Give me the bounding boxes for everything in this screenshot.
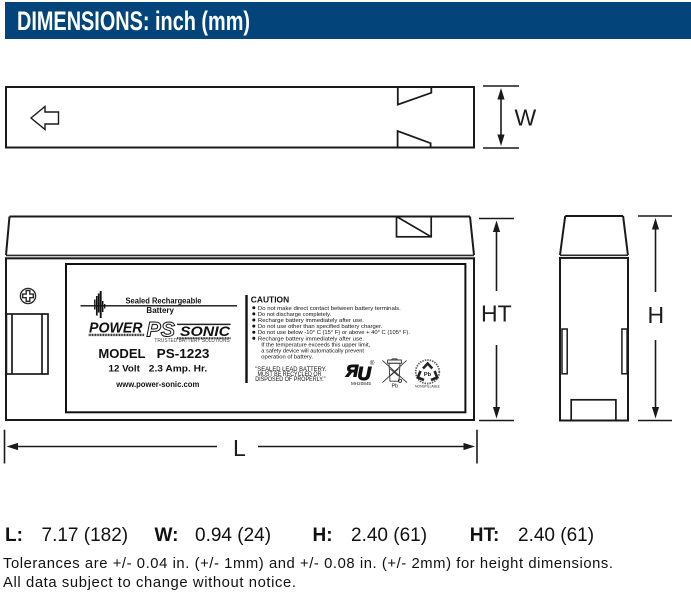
svg-text:L:: L:: [5, 525, 23, 546]
svg-text:Pb: Pb: [424, 372, 432, 378]
svg-text:Do not make direct contact bet: Do not make direct contact between batte…: [258, 306, 401, 312]
svg-text:www.power-sonic.com: www.power-sonic.com: [115, 380, 199, 389]
svg-text:a safety device will automatic: a safety device will automatically preve…: [261, 349, 364, 355]
svg-text:MODEL: MODEL: [98, 347, 145, 361]
svg-text:Sealed Rechargeable: Sealed Rechargeable: [126, 296, 203, 305]
svg-text:7.17 (182): 7.17 (182): [42, 525, 129, 546]
svg-text:TRUSTED BATTERY SOLUTIONS: TRUSTED BATTERY SOLUTIONS: [154, 338, 230, 344]
svg-text:operation of battery.: operation of battery.: [261, 355, 313, 361]
svg-text:2.40 (61): 2.40 (61): [351, 525, 427, 546]
svg-text:W: W: [515, 104, 537, 130]
svg-text:12 Volt: 12 Volt: [109, 364, 141, 375]
svg-text:®: ®: [370, 360, 375, 367]
svg-text:MH20845: MH20845: [351, 381, 371, 386]
svg-text:Do not use below -10° C (15° F: Do not use below -10° C (15° F) or above…: [258, 330, 410, 336]
svg-text:If the temperature exceeds thi: If the temperature exceeds this upper li…: [261, 342, 370, 348]
svg-text:NONSPILLABLE: NONSPILLABLE: [415, 383, 440, 388]
svg-text:Recharge battery immediately a: Recharge battery immediately after use.: [258, 336, 364, 342]
svg-text:Pb: Pb: [392, 384, 399, 390]
svg-text:Recharge battery immediately a: Recharge battery immediately after use.: [258, 318, 364, 324]
svg-text:Tolerances are +/- 0.04 in. (+: Tolerances are +/- 0.04 in. (+/- 1mm) an…: [3, 556, 613, 572]
svg-text:2.3 Amp. Hr.: 2.3 Amp. Hr.: [149, 364, 207, 375]
svg-text:HT: HT: [481, 301, 512, 327]
svg-text:DISPOSED OF PROPERLY.": DISPOSED OF PROPERLY.": [255, 376, 325, 383]
svg-text:Do not discharge completely.: Do not discharge completely.: [258, 312, 332, 318]
svg-text:0.94 (24): 0.94 (24): [195, 525, 271, 546]
svg-text:2.40 (61): 2.40 (61): [518, 525, 594, 546]
svg-text:PS-1223: PS-1223: [157, 347, 210, 361]
svg-text:SONIC: SONIC: [180, 323, 231, 339]
svg-text:CAUTION: CAUTION: [251, 294, 289, 304]
svg-text:Do not use other than specifie: Do not use other than specified battery …: [258, 324, 383, 330]
svg-text:DIMENSIONS: inch (mm): DIMENSIONS: inch (mm): [17, 6, 250, 36]
svg-text:All data subject to change wit: All data subject to change without notic…: [3, 575, 296, 591]
svg-text:L: L: [233, 435, 246, 461]
svg-text:W:: W:: [155, 525, 179, 546]
svg-text:H:: H:: [313, 525, 333, 546]
svg-text:HT:: HT:: [470, 525, 500, 546]
svg-text:H: H: [648, 302, 665, 328]
svg-text:Battery: Battery: [146, 306, 174, 315]
